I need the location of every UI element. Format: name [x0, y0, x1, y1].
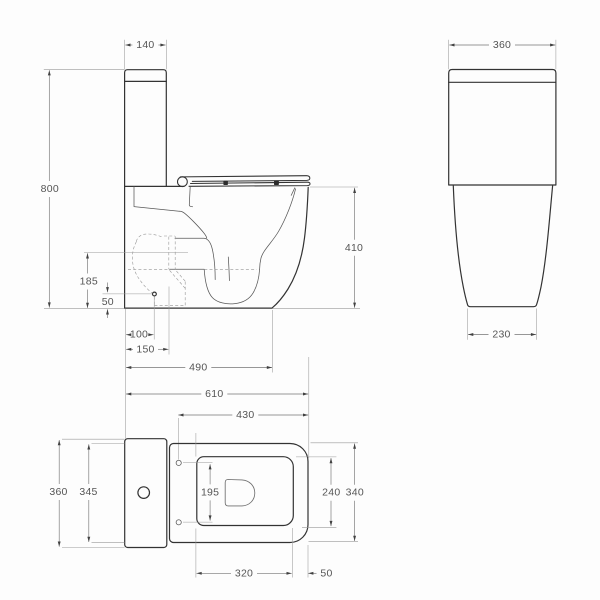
svg-text:50: 50	[320, 567, 332, 579]
svg-text:800: 800	[41, 183, 59, 195]
svg-text:50: 50	[102, 296, 114, 308]
svg-text:195: 195	[201, 486, 219, 498]
svg-text:185: 185	[80, 276, 98, 288]
svg-text:610: 610	[205, 388, 223, 400]
svg-text:340: 340	[346, 486, 364, 498]
svg-text:360: 360	[493, 39, 511, 51]
svg-text:150: 150	[136, 343, 154, 355]
svg-text:410: 410	[345, 242, 363, 254]
svg-text:345: 345	[79, 486, 97, 498]
svg-text:230: 230	[492, 329, 510, 341]
svg-text:360: 360	[49, 486, 67, 498]
svg-text:430: 430	[236, 409, 254, 421]
svg-text:100: 100	[130, 329, 148, 341]
svg-text:140: 140	[136, 39, 154, 51]
svg-text:240: 240	[322, 486, 340, 498]
svg-text:490: 490	[189, 362, 207, 374]
svg-text:320: 320	[235, 567, 253, 579]
